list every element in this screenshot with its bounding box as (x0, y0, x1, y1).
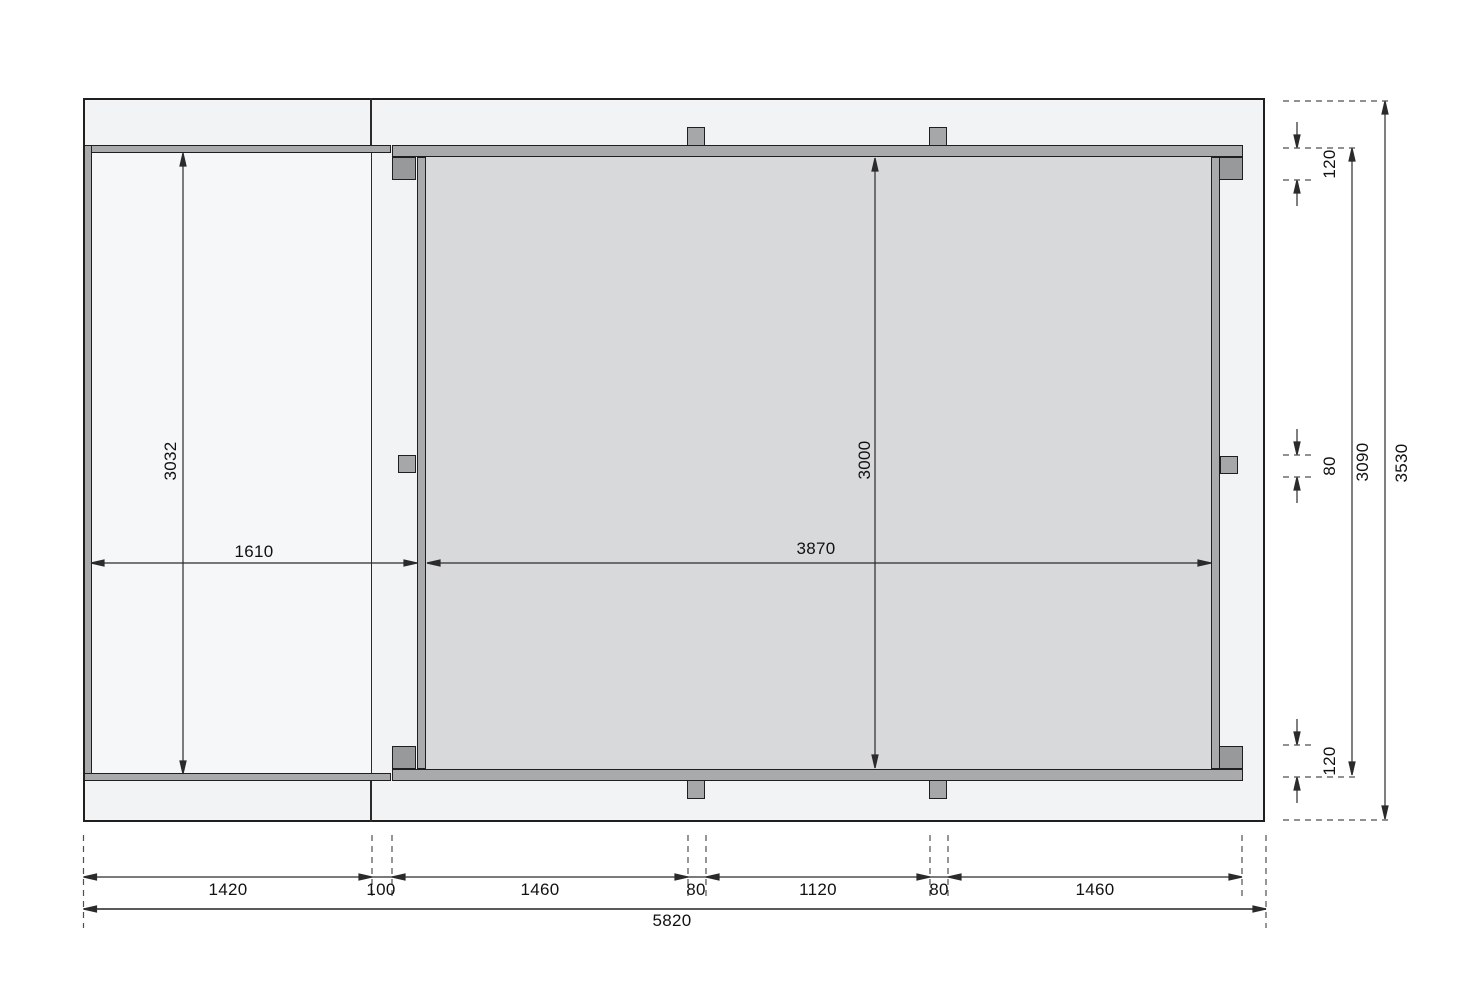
dimline-right-120-bottom (1294, 719, 1300, 803)
room-height-label: 3000 (855, 440, 875, 479)
connector-top-2 (929, 127, 947, 146)
connector-bottom-1 (687, 780, 705, 799)
room-wall-left (417, 157, 426, 769)
bottom-seg-1460a-label: 1460 (520, 880, 559, 900)
room-beam-top (392, 145, 1243, 157)
dimline-right-120-top (1294, 122, 1300, 206)
room-beam-bottom (392, 769, 1243, 781)
room-wall-right (1211, 157, 1220, 769)
corner-post-bottom-left (392, 746, 416, 769)
right-bottom-120-label: 120 (1320, 746, 1340, 775)
annex-wall-bottom (84, 773, 391, 781)
dimline-right-80-mid (1294, 429, 1300, 503)
bottom-seg-1120-label: 1120 (799, 880, 837, 900)
bottom-seg-80a-label: 80 (686, 880, 706, 900)
bottom-total-label: 5820 (652, 911, 691, 931)
bottom-seg-100-label: 100 (366, 880, 395, 900)
room-width-label: 3870 (796, 539, 835, 559)
annex-floor (91, 152, 371, 775)
annex-width-label: 1610 (234, 542, 273, 562)
corner-post-top-right (1219, 157, 1243, 180)
dimline-right-3530 (1382, 101, 1388, 819)
dimension-drawing: 3032 1610 3870 3000 120 80 120 3090 3530… (0, 0, 1471, 1001)
corner-post-top-left (392, 157, 416, 180)
bottom-seg-80b-label: 80 (929, 880, 949, 900)
connector-top-1 (687, 127, 705, 146)
corner-post-bottom-right (1219, 746, 1243, 769)
connector-mid-right (1220, 456, 1238, 474)
annex-wall-left (84, 145, 92, 781)
bottom-seg-1420-label: 1420 (208, 880, 247, 900)
room-floor (425, 157, 1212, 769)
connector-mid-left (398, 455, 416, 473)
bottom-seg-1460b-label: 1460 (1075, 880, 1114, 900)
right-outer-total-label: 3530 (1392, 443, 1412, 482)
dimline-bottom-chain (84, 874, 1243, 880)
right-top-120-label: 120 (1320, 149, 1340, 178)
annex-wall-top (84, 145, 391, 153)
connector-bottom-2 (929, 780, 947, 799)
right-mid-80-label: 80 (1320, 456, 1340, 476)
right-inner-total-label: 3090 (1353, 442, 1373, 481)
annex-height-label: 3032 (161, 441, 181, 480)
